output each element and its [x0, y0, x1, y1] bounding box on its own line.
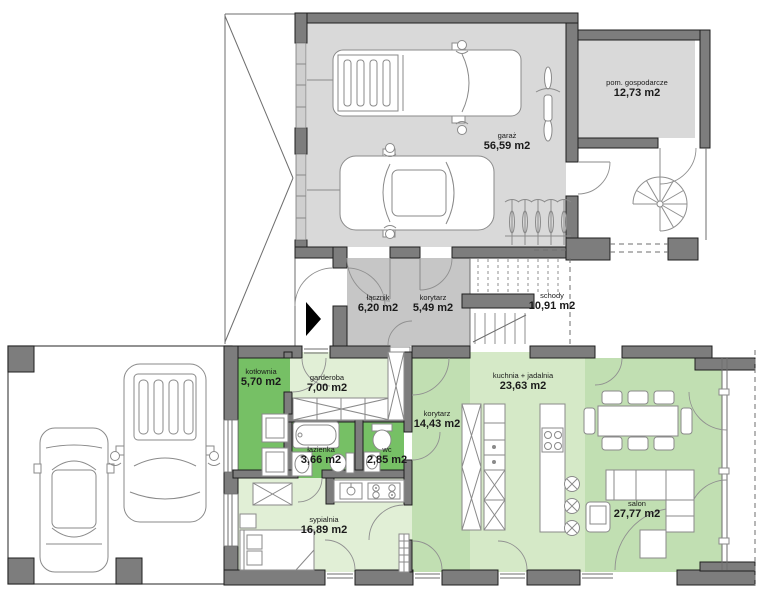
room-area: 10,91 m2: [529, 300, 575, 313]
room-name: łazienka: [301, 445, 341, 454]
floor-plan: garaż 56,59 m2 pom. gospodarcze 12,73 m2…: [0, 0, 763, 600]
room-area: 12,73 m2: [606, 87, 668, 100]
driveway-gate-outline: [225, 14, 295, 346]
room-label-korytarz: korytarz 14,43 m2: [414, 409, 460, 431]
room-label-lacznik: łącznik 6,20 m2: [358, 293, 398, 315]
room-area: 3,66 m2: [301, 454, 341, 467]
room-name: korytarz: [414, 409, 460, 418]
room-area: 56,59 m2: [484, 140, 530, 153]
room-name: kotłownia: [241, 367, 281, 376]
room-area: 16,89 m2: [301, 524, 347, 537]
room-label-wc: wc 2,85 m2: [367, 445, 407, 467]
carport-pillar: [8, 558, 34, 584]
room-label-salon: salon 27,77 m2: [614, 499, 660, 521]
coffee-table-icon: [640, 530, 666, 558]
car-icon: [340, 149, 494, 237]
room-area: 23,63 m2: [493, 380, 553, 393]
pickup-truck-icon: [333, 43, 521, 123]
stair-rail: [462, 294, 534, 308]
car-icon: [34, 428, 114, 572]
room-name: salon: [614, 499, 660, 508]
carport: [8, 346, 232, 584]
room-area: 14,43 m2: [414, 418, 460, 431]
room-label-korytarz-maly: korytarz 5,49 m2: [413, 293, 453, 315]
room-area: 5,49 m2: [413, 302, 453, 315]
kitchenette: [334, 480, 404, 502]
room-label-garaz: garaż 56,59 m2: [484, 131, 530, 153]
carport-pillar: [116, 558, 142, 584]
room-name: pom. gospodarcze: [606, 78, 668, 87]
room-name: łącznik: [358, 293, 398, 302]
room-area: 7,00 m2: [307, 382, 347, 395]
room-name: garderoba: [307, 373, 347, 382]
room-area: 27,77 m2: [614, 508, 660, 521]
rear-corridor: [566, 148, 706, 260]
room-label-sypialnia: sypialnia 16,89 m2: [301, 515, 347, 537]
room-name: schody: [529, 291, 575, 300]
room-area: 6,20 m2: [358, 302, 398, 315]
room-name: garaż: [484, 131, 530, 140]
room-label-schody: schody 10,91 m2: [529, 291, 575, 313]
room-area: 2,85 m2: [367, 454, 407, 467]
kitchen-island: [540, 404, 565, 532]
radiator-icon: [399, 534, 409, 572]
bar-stools: [565, 477, 580, 536]
room-name: kuchnia + jadalnia: [493, 371, 553, 380]
suv-icon: [116, 364, 214, 522]
room-label-lazienka: łazienka 3,66 m2: [301, 445, 341, 467]
kitchen-cabinets: [462, 404, 505, 530]
carport-pillar: [8, 346, 34, 372]
spiral-stairs-icon: [633, 177, 687, 231]
nightstand-icon: [240, 514, 256, 528]
entrance-arrow-icon: [306, 302, 321, 336]
room-label-garderoba: garderoba 7,00 m2: [307, 373, 347, 395]
room-label-pom-gospodarcze: pom. gospodarcze 12,73 m2: [606, 78, 668, 100]
room-area: 5,70 m2: [241, 376, 281, 389]
window: [224, 494, 238, 546]
door-swing: [295, 268, 333, 306]
room-name: sypialnia: [301, 515, 347, 524]
window: [224, 420, 238, 472]
armchair-icon: [586, 502, 610, 532]
wardrobe-icon: [253, 483, 292, 505]
room-name: wc: [367, 445, 407, 454]
room-label-kuchnia-jadalnia: kuchnia + jadalnia 23,63 m2: [493, 371, 553, 393]
room-label-kotlownia: kotłownia 5,70 m2: [241, 367, 281, 389]
corridor-floor: [412, 352, 470, 572]
room-name: korytarz: [413, 293, 453, 302]
